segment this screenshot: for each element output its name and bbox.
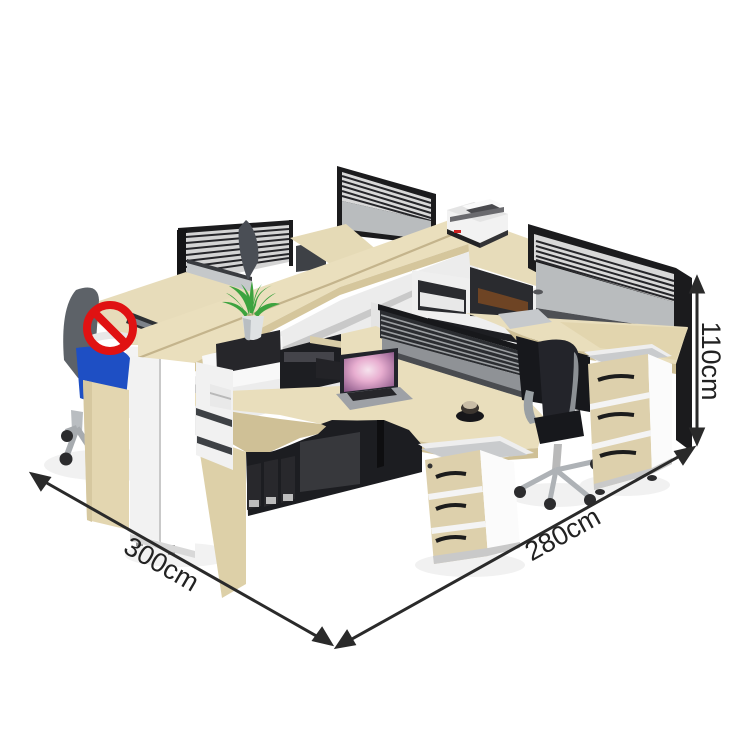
svg-text:110cm: 110cm	[696, 321, 726, 400]
